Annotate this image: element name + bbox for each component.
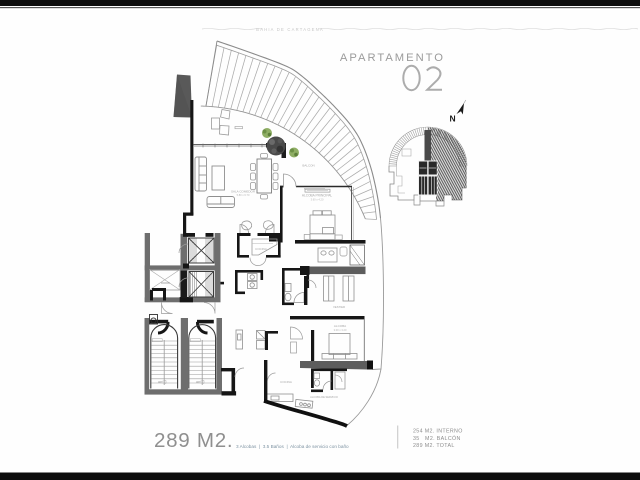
- svg-text:35 M2. BALCÓN: 35 M2. BALCÓN: [413, 435, 461, 442]
- svg-text:APARTAMENTO: APARTAMENTO: [340, 52, 445, 64]
- svg-text:ALCOBA DE SERVICIO: ALCOBA DE SERVICIO: [310, 395, 338, 399]
- svg-text:ALCOBA: ALCOBA: [334, 324, 346, 328]
- svg-text:BAHIA DE CARTAGENA: BAHIA DE CARTAGENA: [256, 27, 324, 32]
- svg-text:COCINA: COCINA: [255, 247, 267, 251]
- svg-text:289 M2. TOTAL: 289 M2. TOTAL: [413, 443, 455, 449]
- svg-text:VESTIER: VESTIER: [333, 305, 345, 309]
- svg-text:ALCOBA PRINCIPAL: ALCOBA PRINCIPAL: [302, 194, 332, 198]
- svg-text:254 M2. INTERNO: 254 M2. INTERNO: [413, 429, 463, 435]
- svg-text:BALCON: BALCON: [302, 164, 314, 168]
- svg-text:N: N: [450, 114, 456, 124]
- svg-text:3.00 x 3.20: 3.00 x 3.20: [334, 328, 347, 332]
- svg-text:3.60 x 4.20: 3.60 x 4.20: [311, 198, 324, 202]
- svg-text:COCINA: COCINA: [280, 380, 292, 384]
- svg-text:3 Alcobas | 3.5 Baños | Al: 3 Alcobas | 3.5 Baños | Alcoba de servic…: [236, 444, 349, 449]
- svg-text:SALA COMEDOR: SALA COMEDOR: [231, 190, 256, 194]
- svg-text:289 M2.: 289 M2.: [154, 429, 233, 452]
- svg-text:5.80 x 6.70: 5.80 x 6.70: [237, 193, 250, 197]
